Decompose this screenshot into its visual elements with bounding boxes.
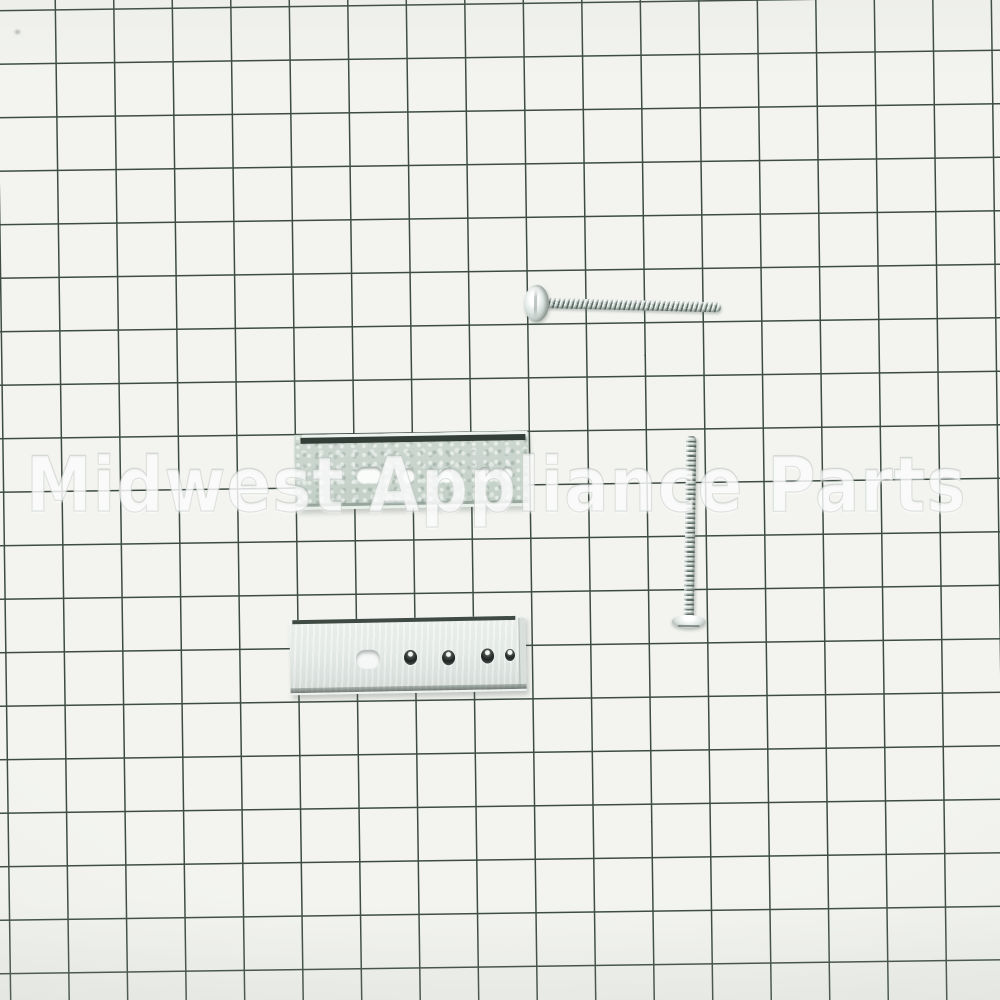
truss-head-screw-vertical [670,436,711,633]
bracket-countersunk-hole [481,648,494,663]
bracket-round-hole [440,468,453,482]
bracket-countersunk-hole [505,649,515,661]
bracket-round-hole [402,468,415,482]
screw-threaded-shank [545,298,721,312]
dust-speck [15,30,20,34]
bracket-round-hole [478,467,491,481]
bracket-end-cap [518,618,526,686]
bracket-countersunk-hole [404,650,417,665]
product-photo: Midwest Appliance Parts [0,0,1000,1000]
screw-head [672,615,706,628]
screw-threaded-shank [684,436,697,618]
bracket-countersunk-hole [442,650,455,665]
bracket-round-hole [502,466,513,478]
mounting-bracket-polished [289,616,526,696]
bracket-slot-hole [356,467,382,483]
pan-head-screw-horizontal [524,284,723,329]
bracket-slot-hole [356,650,380,669]
screw-head [524,285,550,323]
mounting-bracket-galvanized [294,431,528,510]
